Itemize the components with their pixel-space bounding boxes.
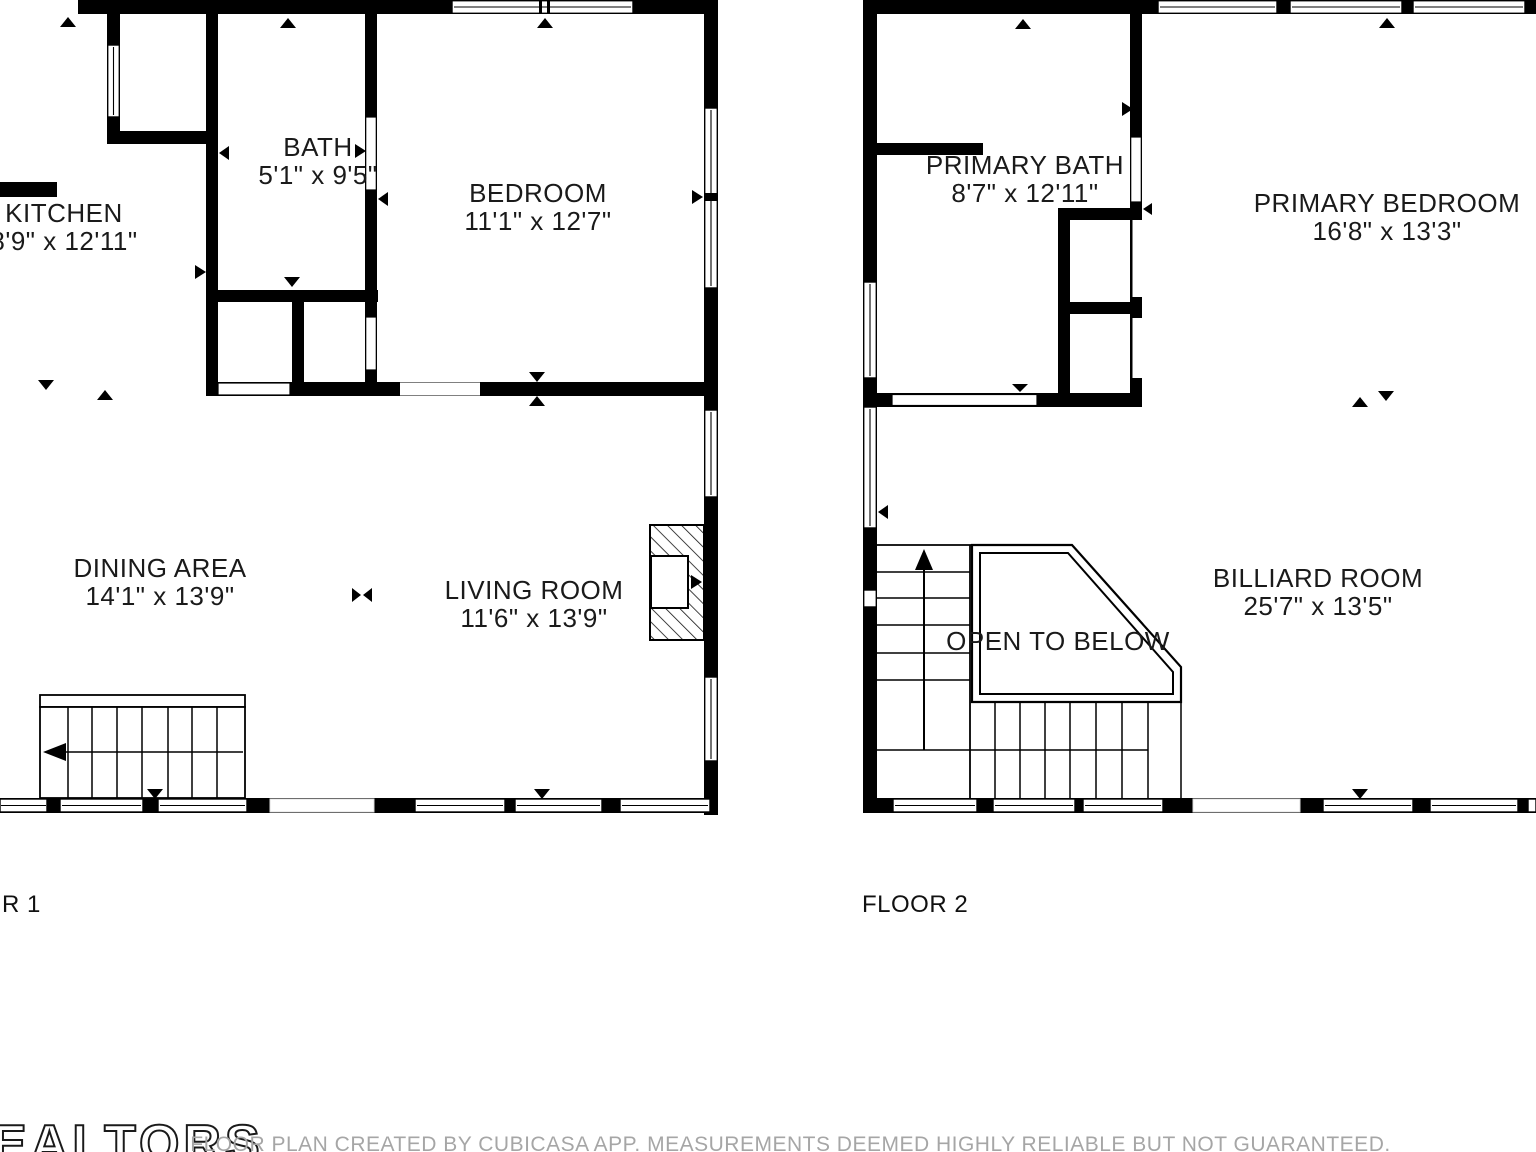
floor1-stairs <box>40 695 245 798</box>
room-name: KITCHEN <box>0 199 138 227</box>
fireplace <box>650 525 704 640</box>
room-label-primary-bath: PRIMARY BATH 8'7" x 12'11" <box>926 151 1124 207</box>
floor2-walls <box>863 0 1536 813</box>
room-label-billiard-room: BILLIARD ROOM 25'7" x 13'5" <box>1213 564 1423 620</box>
floorplan-page: KITCHEN 8'9" x 12'11" BATH 5'1" x 9'5" B… <box>0 0 1536 1152</box>
room-label-dining-area: DINING AREA 14'1" x 13'9" <box>73 554 246 610</box>
room-label-bath: BATH 5'1" x 9'5" <box>258 133 377 189</box>
room-dims: 8'7" x 12'11" <box>926 179 1124 207</box>
floor1-caption: R 1 <box>2 891 41 919</box>
open-to-below-outline <box>972 545 1181 702</box>
room-name: BEDROOM <box>464 179 611 207</box>
room-dims: 16'8" x 13'3" <box>1254 217 1521 245</box>
room-label-bedroom: BEDROOM 11'1" x 12'7" <box>464 179 611 235</box>
room-name: DINING AREA <box>73 554 246 582</box>
room-name: BILLIARD ROOM <box>1213 564 1423 592</box>
room-dims: 25'7" x 13'5" <box>1213 592 1423 620</box>
room-dims: 8'9" x 12'11" <box>0 227 138 255</box>
room-dims: 14'1" x 13'9" <box>73 582 246 610</box>
room-name: PRIMARY BEDROOM <box>1254 189 1521 217</box>
room-name: LIVING ROOM <box>445 576 624 604</box>
room-label-primary-bedroom: PRIMARY BEDROOM 16'8" x 13'3" <box>1254 189 1521 245</box>
room-dims: 5'1" x 9'5" <box>258 161 377 189</box>
floor2-caption: FLOOR 2 <box>862 891 968 919</box>
room-dims: 11'1" x 12'7" <box>464 207 611 235</box>
stairs-up-arrow-head <box>915 549 933 570</box>
floor1-walls <box>0 0 718 815</box>
room-name: BATH <box>258 133 377 161</box>
room-label-kitchen: KITCHEN 8'9" x 12'11" <box>0 199 138 255</box>
disclaimer-text: FLOOR PLAN CREATED BY CUBICASA APP. MEAS… <box>45 1133 1536 1152</box>
room-label-living-room: LIVING ROOM 11'6" x 13'9" <box>445 576 624 632</box>
open-to-below-label: OPEN TO BELOW <box>946 627 1170 655</box>
room-dims: 11'6" x 13'9" <box>445 604 624 632</box>
room-name: PRIMARY BATH <box>926 151 1124 179</box>
